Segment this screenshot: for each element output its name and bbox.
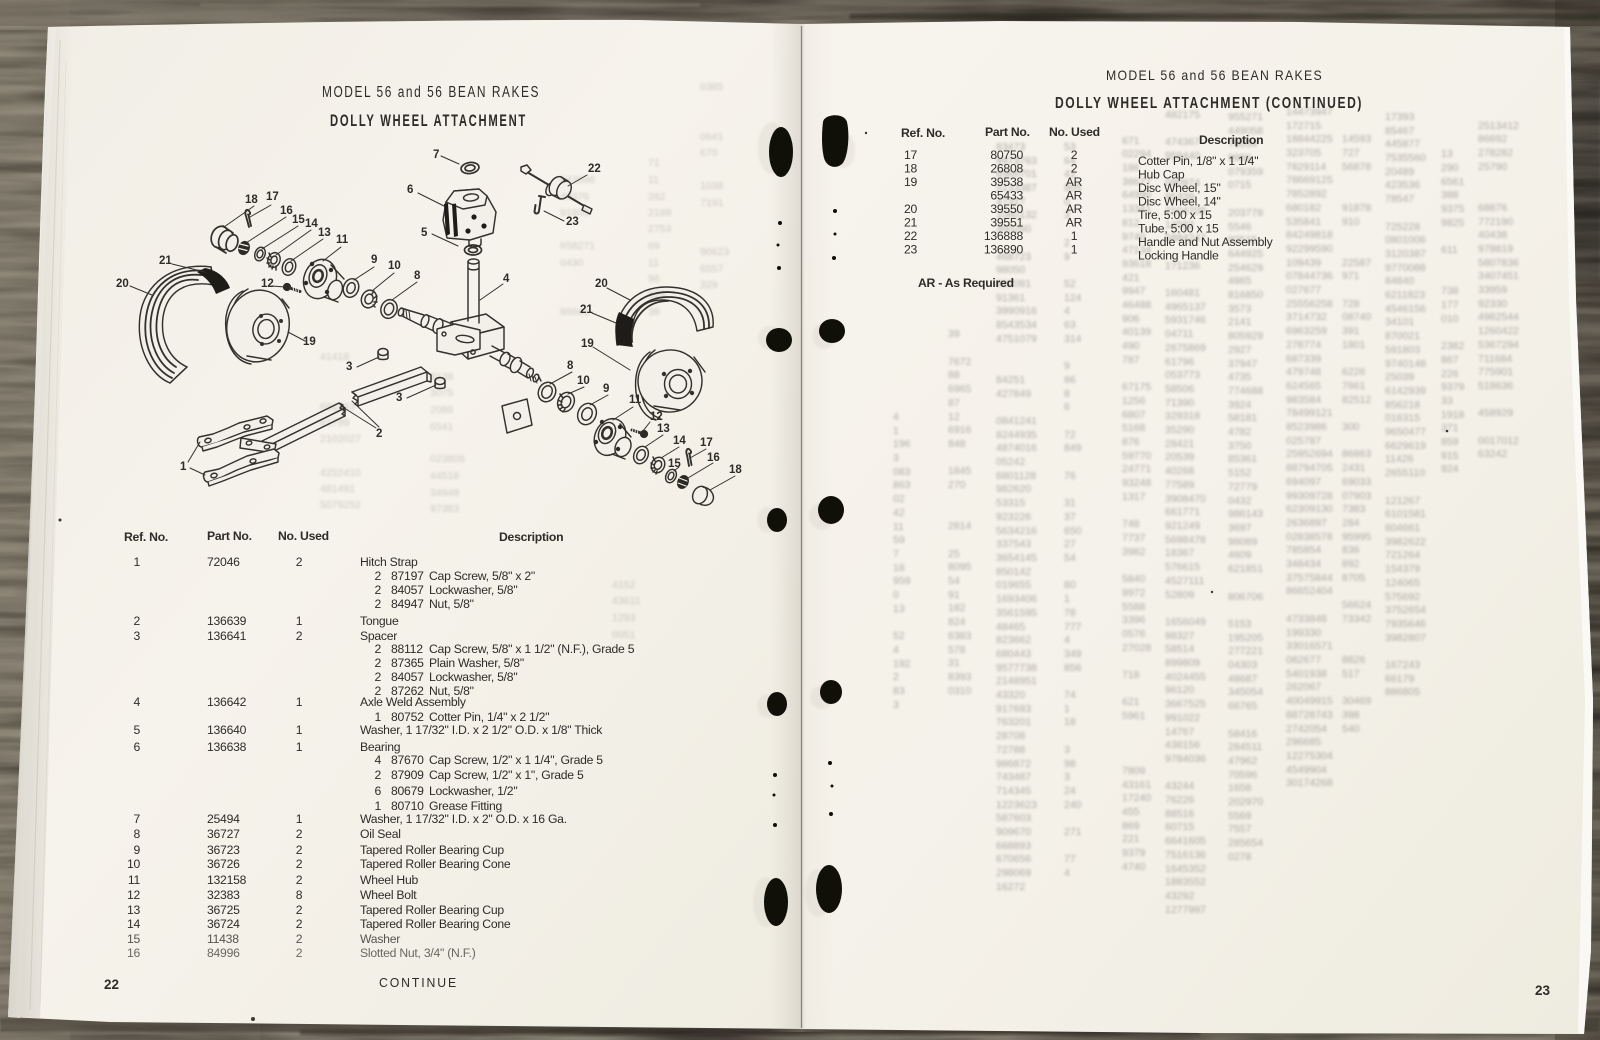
svg-text:24771: 24771: [1122, 463, 1151, 475]
svg-text:28708: 28708: [996, 730, 1025, 742]
svg-text:172715: 172715: [1286, 120, 1321, 132]
svg-text:277221: 277221: [1228, 645, 1263, 657]
svg-text:6541: 6541: [430, 421, 454, 433]
svg-text:80710: 80710: [391, 799, 424, 813]
svg-text:2: 2: [296, 932, 303, 946]
svg-text:1883552: 1883552: [1165, 876, 1206, 888]
svg-text:479748: 479748: [1286, 366, 1321, 378]
svg-text:575692: 575692: [1385, 591, 1420, 603]
svg-text:14: 14: [673, 435, 686, 447]
svg-text:398: 398: [1342, 709, 1360, 721]
svg-text:93248: 93248: [1122, 477, 1151, 489]
svg-text:Description: Description: [499, 530, 563, 544]
svg-text:25: 25: [948, 548, 960, 560]
svg-text:604661: 604661: [1385, 522, 1420, 534]
svg-text:192: 192: [893, 658, 911, 670]
svg-text:84996: 84996: [207, 946, 240, 960]
svg-text:86863: 86863: [1342, 448, 1371, 460]
svg-text:19: 19: [904, 175, 918, 189]
svg-text:Wheel Bolt: Wheel Bolt: [360, 888, 417, 902]
svg-text:02838578: 02838578: [1286, 531, 1333, 543]
svg-text:3908470: 3908470: [1165, 493, 1206, 505]
svg-text:Part No.: Part No.: [207, 529, 252, 543]
svg-text:39538: 39538: [990, 175, 1023, 189]
svg-text:56878: 56878: [1342, 161, 1371, 173]
svg-text:77: 77: [1064, 853, 1076, 865]
svg-text:14767: 14767: [1165, 726, 1194, 738]
svg-text:3: 3: [396, 392, 402, 404]
svg-text:15: 15: [668, 458, 681, 470]
svg-text:0841241: 0841241: [996, 415, 1037, 427]
svg-text:587603: 587603: [996, 812, 1031, 824]
svg-text:74: 74: [1064, 689, 1076, 701]
svg-text:13: 13: [1441, 148, 1453, 160]
svg-text:11: 11: [893, 521, 904, 533]
svg-text:6801128: 6801128: [996, 470, 1036, 482]
svg-text:11: 11: [648, 257, 659, 269]
svg-text:4609: 4609: [1228, 549, 1252, 561]
svg-text:915: 915: [1441, 450, 1459, 462]
svg-text:Wheel Hub: Wheel Hub: [360, 873, 419, 887]
svg-text:15: 15: [292, 214, 305, 226]
svg-text:69033: 69033: [1342, 476, 1371, 488]
svg-text:5807836: 5807836: [1478, 257, 1519, 269]
svg-text:849: 849: [1064, 442, 1082, 454]
svg-text:1693406: 1693406: [996, 593, 1037, 605]
svg-text:391: 391: [1342, 325, 1360, 337]
svg-text:9: 9: [371, 254, 377, 266]
svg-text:25952694: 25952694: [1286, 448, 1333, 460]
svg-text:7935646: 7935646: [1385, 618, 1426, 630]
svg-text:88794705: 88794705: [1286, 462, 1333, 474]
svg-text:7: 7: [893, 548, 899, 560]
svg-text:203778: 203778: [1228, 207, 1263, 219]
svg-text:70596: 70596: [1228, 769, 1257, 781]
svg-text:132158: 132158: [207, 873, 247, 887]
svg-text:Grease Fitting: Grease Fitting: [429, 799, 502, 813]
svg-text:5152: 5152: [1228, 467, 1252, 479]
svg-text:445877: 445877: [1385, 138, 1420, 150]
svg-text:1293: 1293: [612, 612, 636, 624]
svg-text:226: 226: [1441, 368, 1459, 380]
svg-text:1656049: 1656049: [1165, 616, 1206, 628]
svg-text:43161: 43161: [1122, 779, 1151, 791]
svg-text:0715: 0715: [1228, 179, 1252, 191]
svg-text:517: 517: [1342, 668, 1360, 680]
svg-text:8: 8: [133, 827, 140, 841]
svg-text:98: 98: [1064, 758, 1076, 770]
svg-text:474367: 474367: [1165, 136, 1200, 148]
svg-text:856218: 856218: [1385, 399, 1420, 411]
svg-text:775901: 775901: [1478, 366, 1513, 378]
svg-text:481491: 481491: [320, 483, 355, 495]
svg-text:300: 300: [1342, 421, 1360, 433]
svg-text:1: 1: [374, 710, 381, 724]
svg-text:19: 19: [581, 338, 594, 350]
svg-text:329318: 329318: [1165, 410, 1200, 422]
svg-text:271: 271: [1064, 826, 1082, 838]
svg-text:40376: 40376: [560, 191, 589, 203]
svg-text:6561: 6561: [1441, 176, 1465, 188]
svg-text:2: 2: [374, 670, 381, 684]
svg-text:748: 748: [1122, 518, 1140, 530]
svg-text:5168: 5168: [1122, 422, 1146, 434]
svg-text:856: 856: [1064, 662, 1082, 674]
svg-text:4: 4: [1064, 634, 1070, 646]
svg-text:2: 2: [296, 827, 303, 841]
svg-text:3120387: 3120387: [1385, 248, 1426, 260]
svg-text:18: 18: [729, 464, 742, 476]
svg-text:3: 3: [133, 629, 140, 643]
svg-text:63242: 63242: [1478, 448, 1507, 460]
svg-text:17240: 17240: [1122, 792, 1151, 804]
svg-text:863: 863: [893, 479, 911, 491]
svg-text:718: 718: [1122, 669, 1140, 681]
svg-text:16: 16: [280, 205, 293, 217]
svg-text:725228: 725228: [1385, 221, 1420, 233]
svg-text:284: 284: [1342, 517, 1360, 529]
svg-text:5569: 5569: [1228, 810, 1252, 822]
svg-text:38: 38: [648, 306, 660, 318]
svg-text:621851: 621851: [1228, 563, 1263, 575]
svg-text:13: 13: [318, 227, 331, 239]
svg-text:85467: 85467: [1385, 125, 1414, 137]
svg-text:30174268: 30174268: [1286, 777, 1333, 789]
svg-text:72: 72: [1064, 429, 1076, 441]
svg-text:670656: 670656: [996, 853, 1031, 865]
svg-text:136642: 136642: [207, 695, 247, 709]
svg-text:87909: 87909: [391, 768, 424, 782]
svg-text:91361: 91361: [996, 292, 1025, 304]
svg-text:78499121: 78499121: [1286, 407, 1333, 419]
svg-text:8543534: 8543534: [996, 319, 1037, 331]
svg-text:36724: 36724: [207, 917, 240, 931]
svg-text:859: 859: [1441, 436, 1459, 448]
svg-text:2: 2: [296, 843, 303, 857]
svg-text:Tapered Roller Bearing Cup: Tapered Roller Bearing Cup: [360, 843, 504, 857]
svg-text:278774: 278774: [1286, 339, 1321, 351]
svg-text:AR: AR: [1066, 175, 1083, 189]
svg-text:6211823: 6211823: [1385, 289, 1425, 301]
svg-text:30469: 30469: [1342, 695, 1371, 707]
svg-text:02: 02: [893, 493, 905, 505]
svg-text:52809: 52809: [1165, 589, 1194, 601]
svg-text:824: 824: [948, 616, 966, 628]
svg-text:82512: 82512: [1342, 394, 1371, 406]
svg-text:850142: 850142: [996, 566, 1031, 578]
svg-text:86661: 86661: [560, 306, 589, 318]
svg-text:Tongue: Tongue: [360, 614, 399, 628]
svg-text:816850: 816850: [1228, 289, 1263, 301]
svg-text:787: 787: [1122, 354, 1140, 366]
svg-text:458929: 458929: [1478, 407, 1513, 419]
svg-text:34949: 34949: [430, 487, 459, 499]
svg-text:136639: 136639: [207, 614, 247, 628]
svg-text:7535560: 7535560: [1385, 152, 1426, 164]
svg-text:8: 8: [296, 888, 303, 902]
svg-text:12: 12: [261, 278, 274, 290]
svg-text:4: 4: [893, 411, 899, 423]
svg-text:14: 14: [127, 917, 141, 931]
svg-text:6226: 6226: [1342, 366, 1366, 378]
svg-text:0576: 0576: [1122, 628, 1146, 640]
svg-text:4982544: 4982544: [1478, 311, 1519, 323]
svg-text:Cap Screw, 1/2" x 1", Grade 5: Cap Screw, 1/2" x 1", Grade 5: [429, 768, 584, 782]
svg-text:661771: 661771: [1165, 506, 1200, 518]
svg-text:DOLLY WHEEL ATTACHMENT: DOLLY WHEEL ATTACHMENT: [330, 112, 527, 130]
svg-text:7383: 7383: [1342, 503, 1366, 515]
svg-text:2655110: 2655110: [1385, 467, 1425, 479]
svg-text:26808: 26808: [990, 162, 1023, 176]
svg-text:3396: 3396: [1122, 614, 1146, 626]
svg-text:18844225: 18844225: [1286, 133, 1333, 145]
svg-text:78669125: 78669125: [1286, 174, 1333, 186]
svg-text:63: 63: [1064, 319, 1076, 331]
svg-text:421: 421: [1122, 272, 1140, 284]
svg-text:345054: 345054: [1228, 686, 1263, 698]
svg-text:25039: 25039: [1385, 371, 1414, 383]
svg-text:5: 5: [133, 723, 140, 737]
svg-text:906: 906: [1122, 313, 1140, 325]
svg-text:25556258: 25556258: [1286, 298, 1333, 310]
svg-text:35290: 35290: [1165, 424, 1194, 436]
svg-text:738: 738: [1441, 285, 1459, 297]
svg-text:2: 2: [1071, 162, 1078, 176]
svg-text:Handle and Nut Assembly: Handle and Nut Assembly: [1138, 235, 1274, 249]
svg-text:3697: 3697: [1228, 522, 1252, 534]
svg-text:Locking Handle: Locking Handle: [1138, 249, 1219, 263]
svg-text:21: 21: [159, 255, 172, 267]
svg-text:2: 2: [296, 903, 303, 917]
svg-text:2148951: 2148951: [996, 675, 1037, 687]
svg-text:160481: 160481: [1165, 287, 1200, 299]
svg-text:84251: 84251: [996, 374, 1025, 386]
svg-text:4252410: 4252410: [320, 467, 361, 479]
svg-text:22: 22: [904, 229, 918, 243]
svg-text:33: 33: [1441, 395, 1453, 407]
svg-text:869: 869: [1122, 820, 1140, 832]
svg-text:Oil Seal: Oil Seal: [360, 827, 401, 841]
svg-text:27: 27: [1064, 538, 1076, 550]
svg-text:2: 2: [893, 671, 899, 683]
svg-text:9972: 9972: [1122, 587, 1146, 599]
svg-text:87: 87: [948, 397, 960, 409]
svg-text:98089: 98089: [1228, 536, 1257, 548]
svg-text:270: 270: [948, 479, 966, 491]
svg-text:32383: 32383: [207, 888, 240, 902]
svg-text:0017012: 0017012: [1478, 435, 1519, 447]
svg-text:Hitch Strap: Hitch Strap: [360, 555, 418, 569]
svg-text:10: 10: [388, 260, 401, 272]
svg-text:12: 12: [650, 411, 663, 423]
svg-text:5079252: 5079252: [320, 499, 361, 511]
svg-text:349: 349: [1064, 648, 1082, 660]
svg-text:5401938: 5401938: [1286, 668, 1327, 680]
svg-text:36727: 36727: [207, 827, 240, 841]
svg-text:39550: 39550: [990, 202, 1023, 216]
svg-text:1317: 1317: [1122, 491, 1146, 503]
svg-text:4782: 4782: [1228, 426, 1252, 438]
svg-text:3750: 3750: [1228, 440, 1252, 452]
svg-text:2: 2: [374, 597, 381, 611]
svg-text:46488: 46488: [1122, 299, 1151, 311]
svg-text:AR: AR: [1066, 189, 1083, 203]
svg-text:Bearing: Bearing: [360, 740, 400, 754]
svg-text:1918: 1918: [1441, 409, 1465, 421]
svg-text:40049915: 40049915: [1286, 695, 1333, 707]
svg-text:24: 24: [1064, 785, 1076, 797]
svg-text:4874016: 4874016: [996, 442, 1037, 454]
svg-text:72046: 72046: [207, 555, 240, 569]
svg-text:16: 16: [127, 946, 141, 960]
svg-text:40139: 40139: [1122, 326, 1151, 338]
svg-text:0801006: 0801006: [1385, 234, 1426, 246]
svg-text:0310: 0310: [948, 685, 972, 697]
svg-text:53315: 53315: [996, 497, 1025, 509]
svg-text:177: 177: [1441, 299, 1459, 311]
svg-text:4865: 4865: [1228, 275, 1252, 287]
svg-text:72779: 72779: [1228, 481, 1257, 493]
svg-text:694097: 694097: [1286, 476, 1321, 488]
svg-text:43292: 43292: [1165, 890, 1194, 902]
svg-text:58416: 58416: [1228, 728, 1257, 740]
svg-text:9375: 9375: [1441, 203, 1465, 215]
svg-text:18: 18: [1064, 716, 1076, 728]
svg-text:986143: 986143: [1228, 508, 1263, 520]
svg-text:05242: 05242: [996, 456, 1025, 468]
svg-text:8: 8: [414, 270, 421, 282]
svg-text:16: 16: [707, 452, 720, 464]
svg-text:87365: 87365: [391, 656, 424, 670]
svg-text:AR - As Required: AR - As Required: [918, 276, 1014, 290]
svg-text:154379: 154379: [1385, 563, 1420, 575]
svg-text:2675869: 2675869: [1165, 342, 1206, 354]
svg-text:Spacer: Spacer: [360, 629, 397, 643]
svg-text:17393: 17393: [1385, 111, 1414, 123]
svg-text:11: 11: [336, 234, 349, 246]
svg-text:923226: 923226: [996, 511, 1031, 523]
svg-text:2: 2: [1071, 148, 1078, 162]
svg-text:2513412: 2513412: [1478, 120, 1519, 132]
svg-text:60715: 60715: [1165, 821, 1194, 833]
svg-text:88: 88: [948, 369, 960, 381]
svg-text:806706: 806706: [1228, 591, 1263, 603]
svg-text:8: 8: [567, 360, 574, 372]
svg-text:11438: 11438: [207, 932, 239, 946]
svg-text:43244: 43244: [1165, 780, 1194, 792]
svg-text:917693: 917693: [996, 703, 1031, 715]
svg-text:11: 11: [629, 394, 642, 406]
svg-text:578: 578: [948, 644, 966, 656]
svg-text:91878: 91878: [1342, 202, 1371, 214]
svg-text:Lockwasher, 5/8": Lockwasher, 5/8": [429, 583, 517, 597]
svg-text:6: 6: [407, 184, 413, 196]
svg-text:33959: 33959: [1478, 284, 1507, 296]
svg-text:2189: 2189: [648, 207, 672, 219]
svg-text:9650477: 9650477: [1385, 426, 1426, 438]
svg-text:15: 15: [127, 932, 141, 946]
svg-text:772190: 772190: [1478, 216, 1513, 228]
svg-text:680182: 680182: [1286, 202, 1321, 214]
svg-text:196: 196: [893, 438, 911, 450]
svg-text:240: 240: [1064, 799, 1082, 811]
svg-text:3982622: 3982622: [1385, 536, 1426, 548]
svg-text:3752654: 3752654: [1385, 604, 1426, 616]
svg-text:25494: 25494: [207, 812, 240, 826]
svg-text:4: 4: [1064, 305, 1070, 317]
svg-text:2: 2: [296, 857, 303, 871]
svg-text:39551: 39551: [990, 216, 1023, 230]
svg-text:1: 1: [893, 425, 899, 437]
svg-text:95995: 95995: [1342, 531, 1371, 543]
svg-text:774688: 774688: [1228, 385, 1263, 397]
svg-text:69: 69: [648, 240, 660, 252]
svg-text:3714732: 3714732: [1286, 311, 1327, 323]
svg-text:18: 18: [904, 162, 918, 176]
svg-text:083: 083: [893, 466, 911, 478]
svg-text:42: 42: [893, 507, 905, 519]
svg-text:3: 3: [893, 452, 899, 464]
svg-text:5588: 5588: [1122, 601, 1146, 613]
svg-text:36723: 36723: [207, 843, 240, 857]
svg-text:5367294: 5367294: [1478, 339, 1519, 351]
svg-text:62309130: 62309130: [1286, 503, 1333, 515]
svg-text:7737: 7737: [1122, 532, 1146, 544]
svg-text:84057: 84057: [391, 583, 424, 597]
svg-text:2814: 2814: [948, 520, 972, 532]
svg-text:8393: 8393: [948, 671, 972, 683]
svg-text:84947: 84947: [391, 597, 424, 611]
svg-text:2742054: 2742054: [1286, 723, 1327, 735]
svg-text:121267: 121267: [1385, 495, 1420, 507]
svg-text:Washer, 1 17/32" I.D. x 2" O.D: Washer, 1 17/32" I.D. x 2" O.D. x 16 Ga.: [360, 812, 567, 826]
svg-text:3573: 3573: [1228, 303, 1252, 315]
svg-text:28421: 28421: [1165, 438, 1194, 450]
svg-text:867: 867: [1441, 354, 1459, 366]
svg-text:2382: 2382: [1441, 340, 1465, 352]
svg-text:34101: 34101: [1385, 316, 1414, 328]
svg-text:955271: 955271: [1228, 111, 1263, 123]
svg-text:12: 12: [127, 888, 141, 902]
svg-text:7809: 7809: [1122, 765, 1146, 777]
svg-text:284511: 284511: [1228, 741, 1262, 753]
svg-text:21: 21: [904, 216, 918, 230]
svg-text:687339: 687339: [1286, 353, 1321, 365]
svg-text:668893: 668893: [996, 840, 1031, 852]
svg-text:59770: 59770: [1122, 450, 1151, 462]
svg-text:0430: 0430: [560, 257, 584, 269]
svg-text:99309728: 99309728: [1286, 490, 1333, 502]
svg-text:Lockwasher, 1/2": Lockwasher, 1/2": [429, 784, 517, 798]
svg-text:4527111: 4527111: [1165, 575, 1204, 587]
svg-text:Washer, 1 17/32" I.D. x 2 1/2": Washer, 1 17/32" I.D. x 2 1/2" O.D. x 1/…: [360, 723, 603, 737]
svg-text:54: 54: [1064, 552, 1076, 564]
svg-text:2: 2: [296, 873, 303, 887]
svg-text:167243: 167243: [1385, 659, 1420, 671]
svg-text:921249: 921249: [1165, 520, 1200, 532]
svg-text:296685: 296685: [1286, 736, 1321, 748]
svg-text:Slotted Nut, 3/4" (N.F.): Slotted Nut, 3/4" (N.F.): [360, 946, 476, 960]
svg-text:8244935: 8244935: [996, 429, 1037, 441]
svg-text:Cap Screw, 5/8" x 1 1/2" (N.F.: Cap Screw, 5/8" x 1 1/2" (N.F.), Grade 5: [429, 642, 635, 656]
svg-text:07903: 07903: [1342, 490, 1371, 502]
svg-text:714345: 714345: [996, 785, 1031, 797]
svg-text:Plain Washer, 5/8": Plain Washer, 5/8": [429, 656, 524, 670]
svg-text:2: 2: [374, 768, 381, 782]
svg-text:6807: 6807: [1122, 409, 1146, 421]
svg-text:90623: 90623: [700, 246, 729, 258]
svg-text:763201: 763201: [996, 716, 1031, 728]
